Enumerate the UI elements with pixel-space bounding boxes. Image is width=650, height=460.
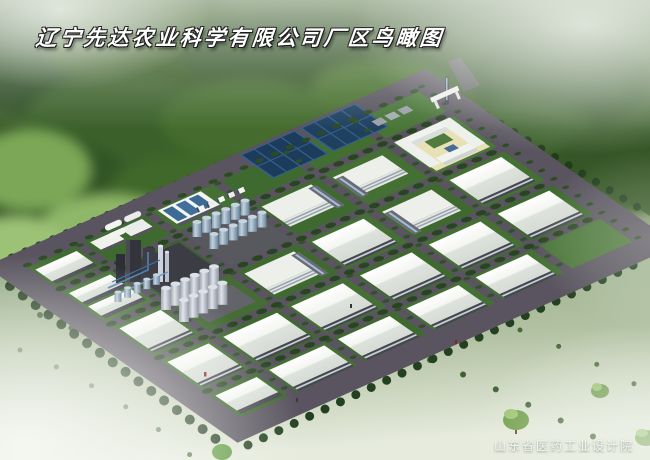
rendering-canvas	[0, 0, 650, 460]
aerial-rendering: 辽宁先达农业科学有限公司厂区鸟瞰图 山东省医药工业设计院	[0, 0, 650, 460]
page-title: 辽宁先达农业科学有限公司厂区鸟瞰图	[34, 22, 445, 52]
design-institute-watermark: 山东省医药工业设计院	[494, 437, 634, 454]
